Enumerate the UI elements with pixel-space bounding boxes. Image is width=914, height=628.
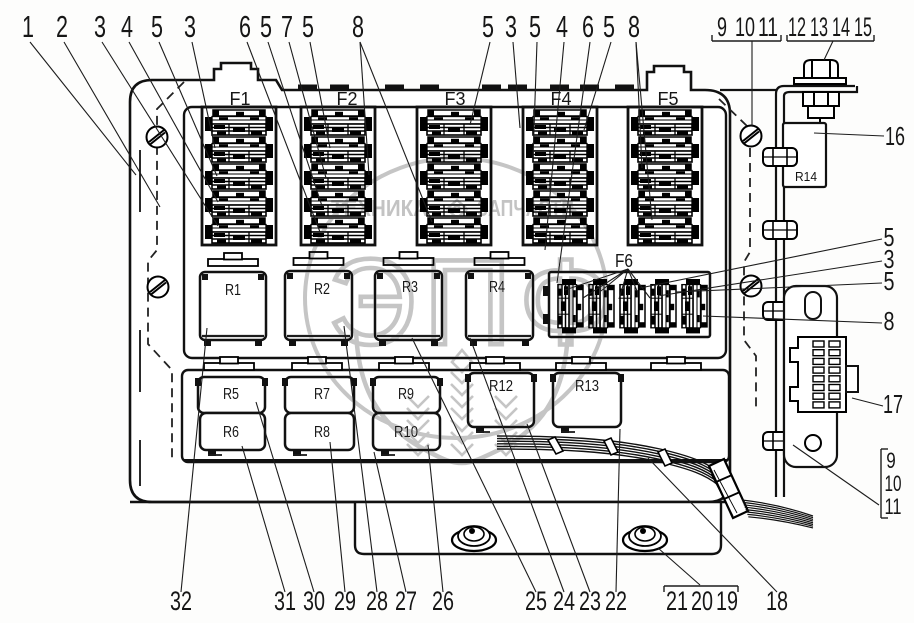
svg-text:R8: R8 — [314, 424, 330, 441]
svg-text:7: 7 — [281, 9, 293, 44]
svg-text:5: 5 — [884, 266, 895, 296]
svg-text:12: 12 — [788, 12, 806, 42]
svg-text:5: 5 — [260, 9, 272, 44]
svg-text:25: 25 — [525, 586, 547, 616]
svg-text:5: 5 — [151, 9, 163, 44]
svg-text:3: 3 — [184, 9, 196, 44]
svg-text:R5: R5 — [223, 386, 239, 403]
svg-text:ЭПФ: ЭПФ — [328, 234, 620, 370]
svg-text:4: 4 — [556, 9, 568, 44]
svg-text:4: 4 — [121, 9, 133, 44]
svg-text:6: 6 — [582, 9, 594, 44]
svg-text:14: 14 — [832, 12, 850, 42]
svg-text:19: 19 — [716, 586, 738, 616]
svg-text:5: 5 — [302, 9, 314, 44]
svg-text:9: 9 — [886, 448, 896, 473]
svg-text:20: 20 — [691, 586, 713, 616]
svg-text:ТЕХНИКА: ТЕХНИКА — [331, 195, 428, 221]
svg-text:17: 17 — [883, 389, 903, 419]
svg-text:21: 21 — [666, 586, 688, 616]
svg-text:R14: R14 — [795, 169, 817, 184]
svg-text:R1: R1 — [225, 282, 241, 299]
svg-text:R12: R12 — [489, 378, 513, 395]
svg-text:9: 9 — [717, 12, 727, 42]
svg-text:2: 2 — [56, 9, 68, 44]
svg-text:6: 6 — [239, 9, 251, 44]
svg-text:8: 8 — [628, 9, 640, 44]
svg-text:18: 18 — [766, 586, 788, 616]
svg-text:15: 15 — [854, 12, 872, 42]
svg-text:11: 11 — [885, 494, 902, 519]
svg-text:11: 11 — [758, 12, 778, 42]
svg-text:8: 8 — [884, 306, 895, 336]
svg-text:ЗАПЧАСТИ: ЗАПЧАСТИ — [477, 195, 574, 221]
svg-text:3: 3 — [505, 9, 517, 44]
svg-text:5: 5 — [482, 9, 494, 44]
svg-text:5: 5 — [529, 9, 541, 44]
svg-text:1: 1 — [22, 9, 34, 44]
svg-text:10: 10 — [735, 12, 755, 42]
svg-text:13: 13 — [810, 12, 828, 42]
svg-text:16: 16 — [885, 121, 905, 151]
svg-text:5: 5 — [603, 9, 615, 44]
svg-text:3: 3 — [94, 9, 106, 44]
svg-text:R6: R6 — [223, 424, 239, 441]
svg-text:8: 8 — [352, 9, 364, 44]
svg-text:10: 10 — [885, 471, 902, 496]
svg-text:R7: R7 — [314, 386, 330, 403]
